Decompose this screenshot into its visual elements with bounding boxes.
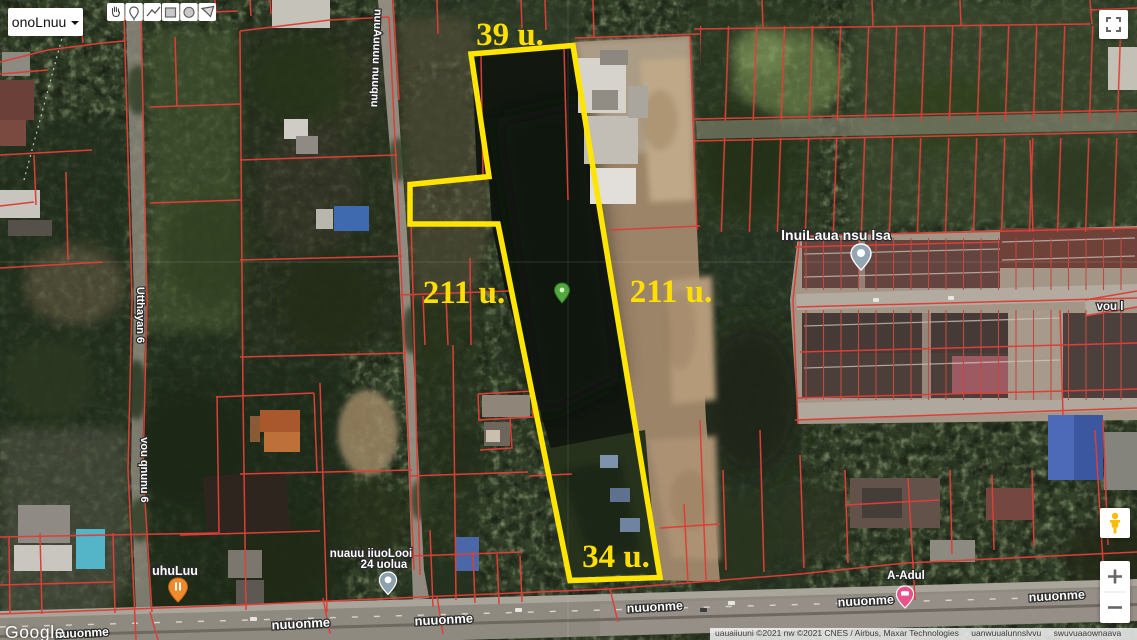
svg-text:nuuonme: nuuonme [626, 599, 683, 616]
svg-text:Utthayan 6: Utthayan 6 [134, 287, 146, 343]
svg-text:A-Adul: A-Adul [887, 570, 925, 582]
svg-text:24 uolua: 24 uolua [361, 559, 408, 571]
svg-text:211 u.: 211 u. [630, 274, 713, 310]
svg-text:nuuonme: nuuonme [271, 614, 330, 632]
svg-text:34 u.: 34 u. [582, 539, 650, 575]
svg-text:nuuonme: nuuonme [414, 610, 473, 628]
svg-text:vou l: vou l [1097, 301, 1124, 313]
svg-text:39 u.: 39 u. [476, 17, 544, 53]
svg-text:vou qnunu 6: vou qnunu 6 [138, 437, 150, 502]
svg-text:lnuiLaua nsu lsa: lnuiLaua nsu lsa [781, 227, 891, 243]
svg-text:nuuonme: nuuonme [1028, 588, 1085, 605]
svg-text:nuuonme: nuuonme [837, 593, 894, 610]
svg-text:uhuLuu: uhuLuu [152, 564, 198, 578]
svg-text:211 u.: 211 u. [423, 275, 506, 311]
